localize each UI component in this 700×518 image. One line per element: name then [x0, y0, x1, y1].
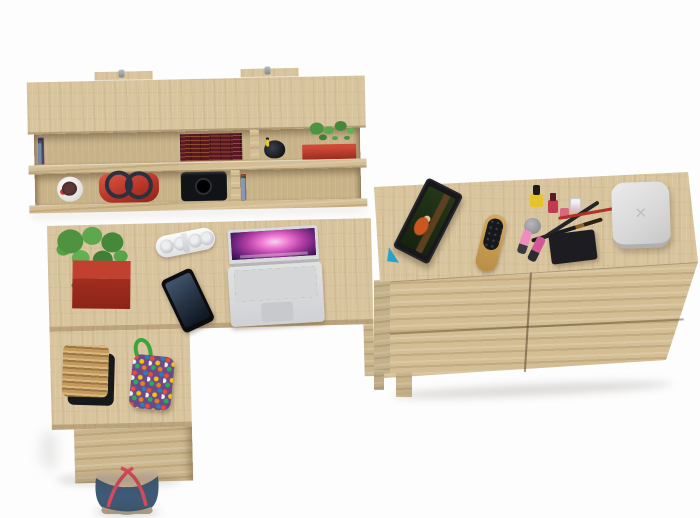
product-render-scene: ✕: [0, 0, 700, 518]
book-row: [241, 169, 242, 200]
laptop-trackpad: [261, 301, 294, 322]
leather-book-set: [180, 133, 243, 161]
tablet-screen: [400, 186, 456, 257]
wicker-basket: [62, 344, 109, 397]
shelf-divider: [250, 130, 260, 161]
desk-shadow: [40, 430, 58, 470]
camera-lens: [195, 178, 212, 195]
laptop: [225, 225, 325, 330]
x-mark-icon: ✕: [634, 204, 647, 222]
book-spine: [38, 143, 42, 164]
eyeshadow-palette: [548, 229, 597, 264]
laptop-body: [228, 262, 325, 327]
bag-handle: [125, 171, 154, 200]
laptop-keyboard: [234, 266, 318, 302]
brush-bristles: [482, 217, 505, 252]
pen-icon: [266, 139, 269, 146]
tablet: [386, 180, 466, 276]
polish-cap: [533, 185, 540, 195]
flower-pot: [57, 176, 84, 202]
laptop-wallpaper: [231, 228, 316, 260]
camera: [181, 171, 228, 201]
screw-icon: [264, 66, 270, 74]
red-handbag: [99, 173, 160, 203]
nail-polish-red: [548, 200, 558, 213]
sideboard: ✕: [372, 170, 700, 404]
planter-front: [72, 278, 130, 309]
wall-shelf: [27, 66, 368, 215]
laptop-dock: [240, 251, 308, 258]
desk-planter: [72, 260, 130, 309]
l-shaped-desk: [43, 210, 381, 488]
perfume-bottle: [570, 198, 581, 211]
sideboard-side-panel: [374, 279, 390, 374]
shelf-plant: [310, 122, 324, 134]
sideboard-foot: [374, 370, 384, 390]
book-spine: [241, 178, 246, 200]
laptop-display: [227, 225, 319, 264]
book-row: [38, 133, 39, 164]
white-router-box: ✕: [611, 181, 671, 249]
pedestal-shadow: [56, 474, 182, 486]
shelf-planter: [302, 144, 356, 160]
planter-rim: [72, 260, 130, 279]
tablet-body: [392, 177, 463, 265]
pot-plant: [62, 182, 77, 196]
eyeshadow-pans: [559, 245, 593, 249]
socket-icon: [159, 238, 175, 254]
shelf-divider: [231, 170, 241, 201]
bag-shadow: [94, 508, 160, 516]
beaded-pouch: [128, 354, 175, 412]
screw-icon: [118, 70, 124, 78]
nail-polish-yellow: [530, 194, 543, 207]
polish-cap: [550, 193, 556, 201]
